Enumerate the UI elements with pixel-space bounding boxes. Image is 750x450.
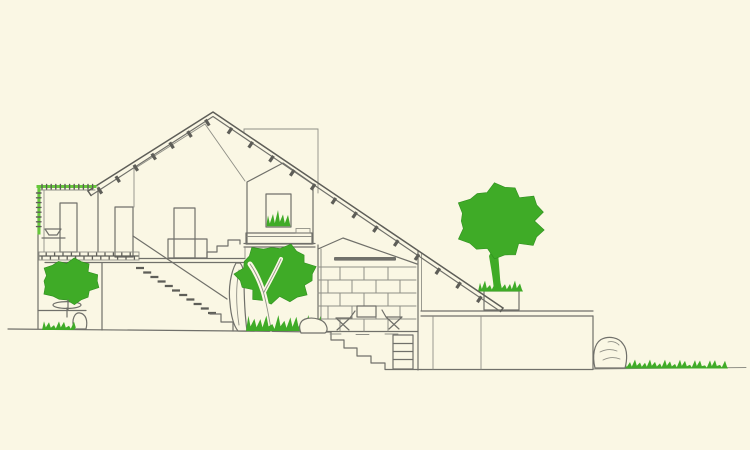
planter-grass	[478, 281, 523, 292]
green-parapet	[37, 185, 96, 234]
stone-room	[318, 238, 422, 370]
door-panel	[60, 203, 77, 252]
court-rock	[300, 318, 327, 333]
table	[357, 306, 376, 317]
terrace	[421, 291, 593, 369]
outdoor-steps	[318, 332, 385, 369]
stair-bottom-steps	[210, 314, 233, 331]
left-bush	[42, 321, 76, 330]
section-drawing	[0, 0, 750, 450]
drawing-canvas	[0, 0, 750, 450]
left-wing	[38, 187, 245, 330]
dormer-room	[246, 163, 313, 244]
stone-masonry	[318, 249, 416, 331]
basement-ladder	[393, 335, 413, 369]
stair-treads	[136, 268, 216, 313]
window-foliage	[266, 210, 291, 227]
beam	[334, 257, 396, 261]
long-stair	[133, 236, 233, 331]
chimney-volume	[244, 129, 318, 193]
greenery	[42, 183, 728, 369]
door-panel	[115, 207, 133, 257]
parapet-ticks	[37, 185, 93, 227]
bed	[246, 229, 312, 245]
terrace-tree-canopy	[458, 183, 544, 259]
door-panel	[174, 208, 195, 258]
floor-hatch-band	[39, 253, 139, 260]
pedestal-table	[53, 302, 81, 317]
left-tree-canopy	[44, 258, 99, 305]
small-steps	[207, 240, 240, 258]
wash-basin	[45, 229, 61, 235]
right-rock	[594, 337, 627, 368]
